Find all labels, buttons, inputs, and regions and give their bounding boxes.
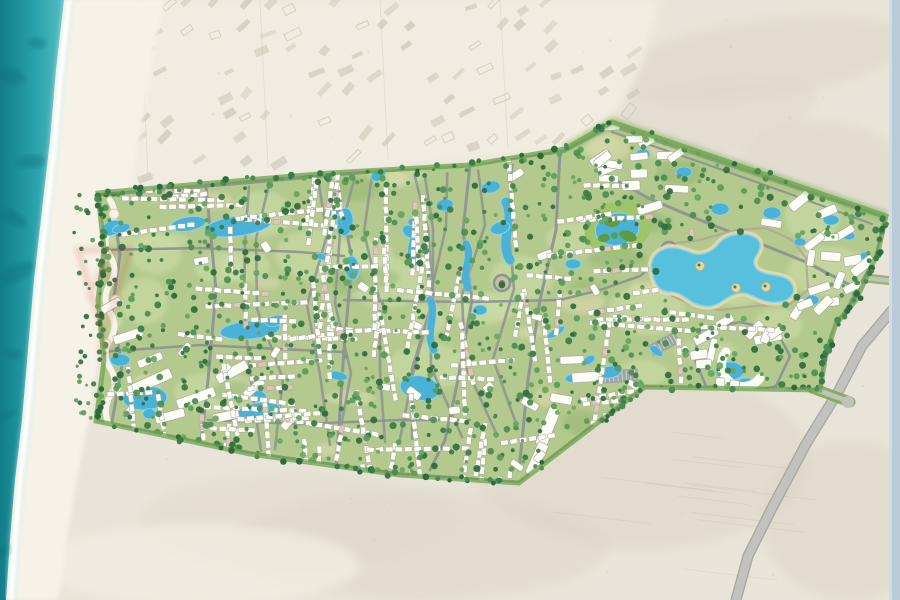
masterplan-svg [0, 0, 900, 600]
pool [565, 259, 581, 269]
right-edge-strip [889, 0, 900, 600]
pond [763, 207, 781, 219]
masterplan-map [0, 0, 900, 600]
pond [711, 203, 729, 215]
